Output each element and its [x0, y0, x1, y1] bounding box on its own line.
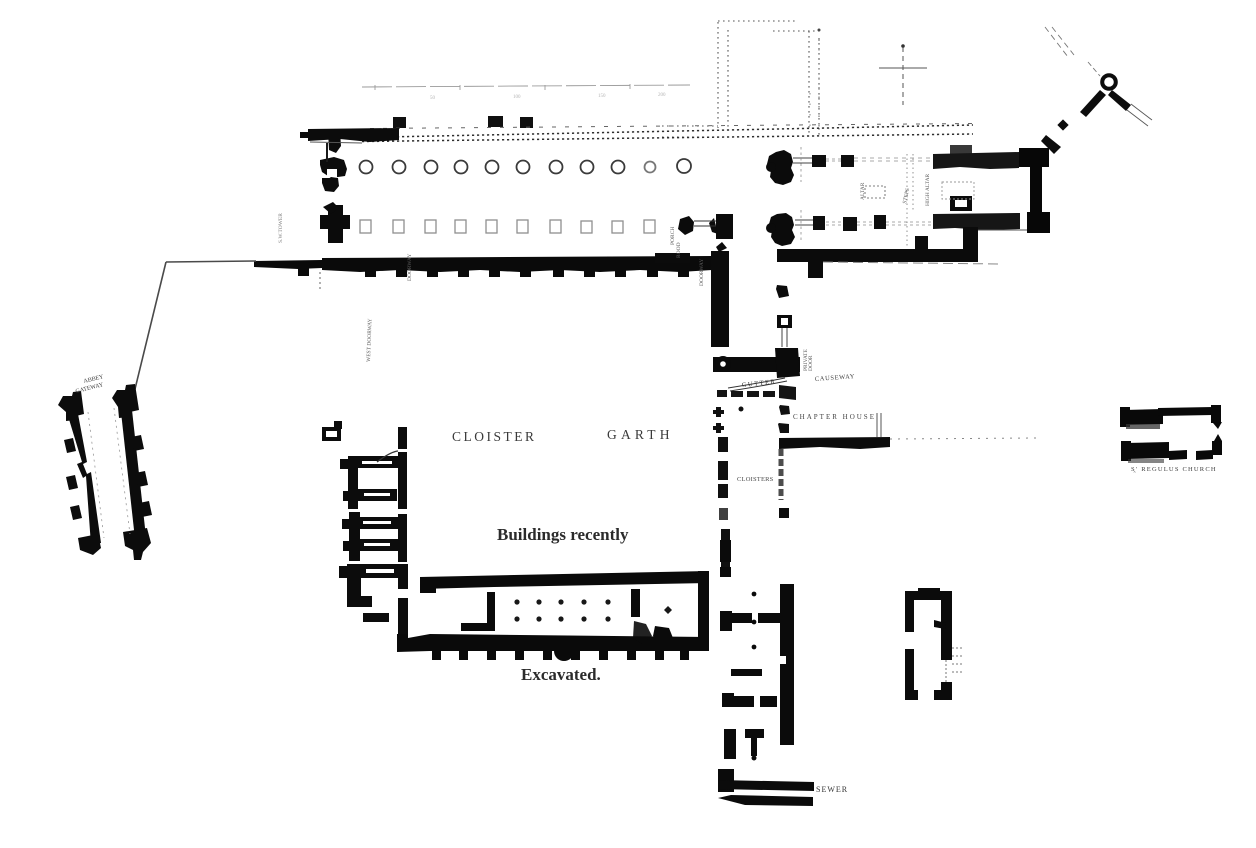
svg-text:100: 100 [513, 95, 521, 100]
svg-text:200: 200 [658, 93, 666, 98]
svg-text:S.W.TOWER: S.W.TOWER [278, 213, 284, 243]
svg-text:CLOISTER: CLOISTER [452, 429, 537, 444]
svg-text:150: 150 [598, 94, 606, 99]
svg-text:GARTH: GARTH [607, 427, 674, 442]
svg-text:ROOD: ROOD [676, 242, 682, 258]
svg-text:PORCH: PORCH [670, 227, 676, 245]
svg-text:DOORWAY: DOORWAY [407, 254, 413, 281]
svg-text:Buildings recently: Buildings recently [497, 525, 629, 544]
svg-text:SEWER: SEWER [816, 785, 848, 794]
svg-text:CHAPTER HOUSE: CHAPTER HOUSE [793, 413, 876, 421]
svg-text:DOOR: DOOR [808, 355, 814, 371]
svg-text:S̭ʹ REGULUS CHURCH: S̭ʹ REGULUS CHURCH [1131, 466, 1217, 473]
svg-text:50: 50 [430, 96, 436, 101]
svg-text:DOORWAY: DOORWAY [699, 259, 705, 286]
svg-text:HIGH ALTAR: HIGH ALTAR [925, 173, 931, 206]
svg-text:CLOISTERS: CLOISTERS [737, 476, 774, 483]
svg-text:Excavated.: Excavated. [521, 665, 601, 684]
svg-text:ALTAR: ALTAR [860, 182, 866, 200]
